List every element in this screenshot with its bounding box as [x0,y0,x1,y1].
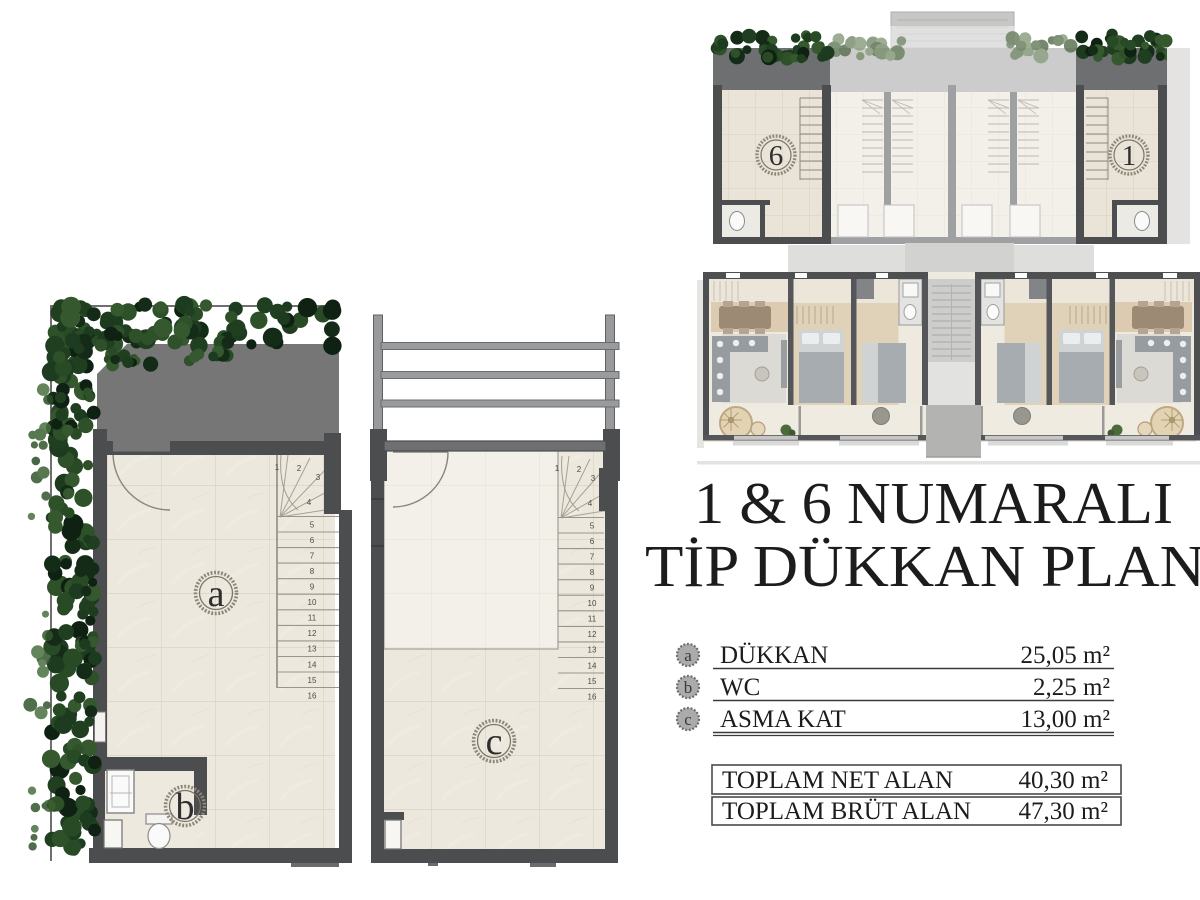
svg-text:1: 1 [275,463,280,472]
svg-text:a: a [208,573,225,615]
svg-text:9: 9 [310,583,315,592]
svg-text:47,30 m²: 47,30 m² [1019,798,1108,825]
svg-text:15: 15 [588,677,597,686]
svg-text:WC: WC [720,674,760,701]
svg-text:c: c [684,710,692,729]
svg-text:2: 2 [577,465,582,474]
svg-text:4: 4 [307,498,312,507]
svg-text:ASMA KAT: ASMA KAT [720,706,846,733]
svg-text:14: 14 [308,660,317,669]
svg-text:40,30 m²: 40,30 m² [1019,767,1108,794]
svg-text:7: 7 [310,551,315,560]
svg-text:3: 3 [316,473,321,482]
svg-text:5: 5 [590,521,595,530]
svg-text:14: 14 [588,661,597,670]
svg-text:6: 6 [769,140,784,172]
svg-text:9: 9 [590,584,595,593]
svg-text:12: 12 [588,630,597,639]
svg-text:DÜKKAN: DÜKKAN [720,642,828,669]
svg-text:4: 4 [588,499,593,508]
svg-text:1: 1 [1122,140,1137,172]
svg-text:TOPLAM BRÜT ALAN: TOPLAM BRÜT ALAN [722,798,971,825]
svg-text:12: 12 [308,629,317,638]
svg-text:15: 15 [308,676,317,685]
svg-text:5: 5 [310,520,315,529]
svg-text:b: b [176,786,195,828]
svg-text:13: 13 [588,646,597,655]
svg-text:b: b [684,678,693,697]
svg-text:16: 16 [588,692,597,701]
svg-text:10: 10 [588,599,597,608]
svg-text:c: c [486,721,503,763]
svg-text:7: 7 [590,552,595,561]
svg-text:3: 3 [591,474,596,483]
svg-text:6: 6 [310,536,315,545]
svg-text:25,05 m²: 25,05 m² [1021,642,1110,669]
svg-text:1: 1 [555,464,560,473]
svg-text:6: 6 [590,537,595,546]
svg-text:TOPLAM NET ALAN: TOPLAM NET ALAN [722,767,953,794]
svg-text:1 & 6 NUMARALI: 1 & 6 NUMARALI [694,470,1173,536]
svg-text:13: 13 [308,645,317,654]
svg-text:11: 11 [308,614,317,623]
svg-text:13,00 m²: 13,00 m² [1021,706,1110,733]
svg-text:11: 11 [588,615,597,624]
svg-text:10: 10 [308,598,317,607]
svg-text:8: 8 [310,567,315,576]
svg-text:8: 8 [590,568,595,577]
svg-text:2: 2 [297,464,302,473]
svg-text:16: 16 [308,691,317,700]
svg-text:2,25 m²: 2,25 m² [1033,674,1110,701]
svg-text:a: a [684,646,692,665]
svg-text:TİP DÜKKAN PLAN: TİP DÜKKAN PLAN [645,533,1200,599]
